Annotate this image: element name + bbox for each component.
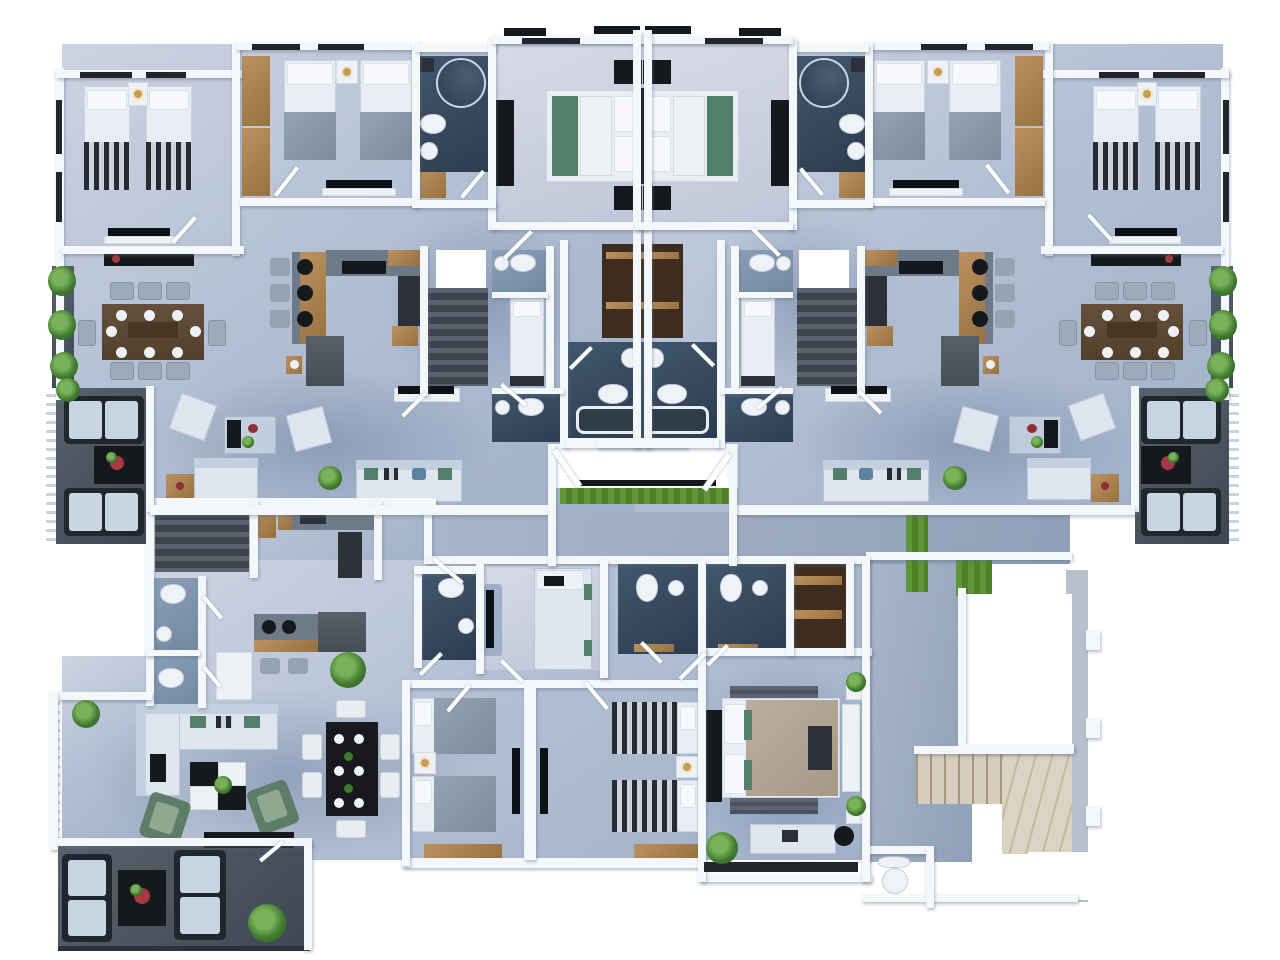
central-bath-toilet-right <box>657 384 687 404</box>
bath-p1-sink <box>668 580 684 596</box>
service-stairs-left <box>426 288 488 386</box>
master-b-bench <box>842 704 860 792</box>
balcony-outer-hatch-wall-right <box>1229 388 1239 544</box>
bath-p1-sill <box>634 644 674 652</box>
balcony-cushion-1b-right <box>1147 401 1180 439</box>
wall-maid-bath-bottom-right <box>737 292 793 298</box>
bbalcony-cushion-2b <box>180 897 220 934</box>
bath-l1-toilet <box>160 584 186 604</box>
bwall-closet-left <box>786 560 794 656</box>
bwall-corridor-south <box>428 556 870 564</box>
bchair-6 <box>336 820 366 838</box>
core-corridor <box>866 564 972 862</box>
bath-corner-shower-right <box>799 58 849 108</box>
kids-b-blanket-2 <box>612 780 678 832</box>
bliving-pillow-1 <box>190 716 206 728</box>
bedroom-a-blanket-1-left <box>84 142 130 190</box>
wall-maid-bath-bottom-left <box>492 292 548 298</box>
bath-linen-closet-left <box>416 172 446 198</box>
stairs-void-left <box>436 250 486 288</box>
window-a2-right <box>1099 72 1139 78</box>
window-b2-left <box>318 44 364 50</box>
kids-a-blanket-1 <box>434 698 496 754</box>
chair-head-1-right <box>1189 320 1207 346</box>
kids-a-lamp <box>419 757 431 769</box>
bplate-2 <box>354 734 364 744</box>
bbalcony-plant <box>248 904 286 942</box>
chair-4-right <box>1151 362 1175 380</box>
bedroom-b-wardrobe-2-left <box>242 128 270 196</box>
master-bed-runner-left <box>552 96 578 176</box>
planter-plant-2-left <box>48 310 76 340</box>
wall-central-bath-bottom-right <box>597 438 719 448</box>
planter-plant-3-left <box>50 352 78 380</box>
master-b-side-table <box>834 826 854 846</box>
family-tv <box>486 590 494 648</box>
cooktop-1-left <box>297 259 313 275</box>
bath-toilet-left <box>420 114 446 134</box>
kitchen-jar-right <box>986 360 995 369</box>
bedroom-b-wardrobe-2-right <box>1015 128 1043 196</box>
btable-green-2 <box>344 784 353 793</box>
bwall-balcony-right <box>304 842 312 950</box>
balcony-flower-leaves-right <box>1168 452 1179 463</box>
sofa-pillow-green-1-left <box>364 468 378 480</box>
floor-plan-canvas <box>0 0 1280 960</box>
roof-mark-1-left <box>504 28 546 36</box>
balcony-flower-leaves-left <box>106 452 117 463</box>
balcony-cushion-2a-right <box>1183 493 1216 531</box>
wall-central-mid-left <box>644 240 652 448</box>
wall-b-bath-right <box>865 42 873 206</box>
planter-plant-1-right <box>1209 266 1237 296</box>
plate-8-left <box>190 326 201 337</box>
kids-a-closet <box>424 844 502 858</box>
bedroom-b-blanket-1-right <box>949 112 1001 160</box>
plate-7-left <box>106 326 117 337</box>
bath-l1-sink <box>156 626 172 642</box>
bbalcony-cushion-1a <box>68 860 106 896</box>
sofa-pillow-stripe-right <box>887 468 901 480</box>
kitchen-range-right <box>899 261 943 274</box>
bedroom-a-lamp-right <box>1141 88 1153 100</box>
planter-plant-2-right <box>1209 310 1237 340</box>
balcony-cushion-2a-left <box>69 493 102 531</box>
bedroom-b-blanket-2-right <box>873 112 925 160</box>
master-tv-panel-left <box>496 100 514 186</box>
bottom-bath-p1-floor <box>618 564 698 654</box>
bedroom-a-blanket-2-left <box>146 142 192 190</box>
kitchen2-burner-2 <box>282 620 296 634</box>
window-a1-left <box>80 72 132 78</box>
bedroom-b-pillow-2-right <box>876 63 922 85</box>
wall-maid-right-right <box>731 246 739 394</box>
kids-b-pillow-1 <box>680 706 696 730</box>
bar-stool-2-right <box>995 284 1015 302</box>
central-bath-tub-right <box>645 406 709 434</box>
chair-4-left <box>110 362 134 380</box>
core-wall-top <box>866 552 1072 560</box>
planter-plant-4-left <box>56 378 80 402</box>
dining-runner-left <box>128 322 178 338</box>
guest-bath-sink-left <box>495 400 510 415</box>
family-remote <box>544 576 564 586</box>
maid-bath-sink-right <box>776 256 791 271</box>
bath-l2-toilet <box>158 668 184 688</box>
bath-r-sink <box>458 618 474 634</box>
master-b-throw <box>808 726 832 770</box>
chair-3-right <box>1095 282 1119 300</box>
wall-master-bottom-right <box>635 222 793 230</box>
grass-strip-right-1 <box>906 508 928 592</box>
bwall-kids-top <box>402 680 704 688</box>
maid-bath-toilet-right <box>749 254 775 272</box>
plate-5-right <box>1130 347 1141 358</box>
master-b-pillow-2 <box>724 754 746 794</box>
plate-8-right <box>1084 326 1095 337</box>
planter-plant-4-right <box>1205 378 1229 402</box>
laundry-shelves <box>155 508 249 572</box>
chair-head-2-right <box>1059 320 1077 346</box>
powder-wall-top <box>870 846 932 854</box>
bottom-core-wall <box>862 894 1078 902</box>
kids-a-blanket-2 <box>434 776 496 832</box>
coffee-table-frame-right <box>1044 420 1058 448</box>
master-b-plant-1 <box>846 672 866 692</box>
kitchen2-low-wood <box>254 640 318 652</box>
kitchen-cabinet-left <box>392 326 418 346</box>
bplate-4 <box>354 766 364 776</box>
kitchen2-stool-2 <box>288 658 308 674</box>
bedroom-a-tv-left <box>108 228 170 236</box>
stair-flight-marble <box>916 754 1002 804</box>
wall-lobby-side-right <box>729 444 737 566</box>
chair-1-right <box>1151 282 1175 300</box>
kitchen-island-left <box>306 336 344 386</box>
kids-b-pillow-2 <box>680 784 696 808</box>
kids-b-lamp <box>681 761 693 773</box>
bath-sink-right <box>847 142 865 160</box>
bwall-left-upper <box>146 498 154 706</box>
living-sofa-1-back-right <box>1027 458 1091 468</box>
bbalcony-cushion-2a <box>180 856 220 893</box>
family-pillow-1 <box>584 584 592 600</box>
pilaster-1 <box>1086 630 1100 650</box>
bchair-4 <box>380 772 400 798</box>
balcony-cushion-2b-right <box>1147 493 1180 531</box>
wall-top-bath-right <box>789 44 869 52</box>
kitchen2-appliance <box>338 532 362 578</box>
bwall-right <box>862 560 870 882</box>
window-b1-right <box>985 44 1033 50</box>
bwall-jut <box>58 692 152 700</box>
elevator-wall <box>958 588 966 752</box>
bar-stool-1-right <box>995 258 1015 276</box>
closet-rail-a <box>794 576 842 585</box>
bath-toilet-right <box>839 114 865 134</box>
bwall-kids-bottom <box>402 858 704 868</box>
bedroom-b-pillow-1-right <box>952 63 998 85</box>
bedroom-a-pillow-2-right <box>1096 90 1136 110</box>
window-left-1-right <box>1223 100 1229 154</box>
entry-step <box>578 480 716 486</box>
master-b-teal-2 <box>744 760 752 790</box>
bedroom-a-pillow-1-left <box>87 90 127 110</box>
bath-p2-toilet <box>720 574 742 602</box>
bottom-bath-p2-floor <box>704 564 786 654</box>
coffee-table-red-decor-right <box>1027 424 1037 433</box>
maid-bed-pillow-right <box>744 301 772 317</box>
bliving-pillow-2 <box>216 716 232 728</box>
bplate-6 <box>354 798 364 808</box>
bwall-closet-right <box>846 560 854 656</box>
bedroom-b-blanket-1-left <box>284 112 336 160</box>
elevator-void <box>964 594 1072 746</box>
central-bath-toilet-left <box>598 384 628 404</box>
maid-bed-foot-right <box>741 376 775 386</box>
wall-center-top-left <box>644 30 652 244</box>
kitchen-cabinet-right <box>867 326 893 346</box>
bedroom-b-lamp-left <box>341 66 353 78</box>
window-b2-right <box>921 44 967 50</box>
stairs-void-right <box>799 250 849 288</box>
central-bath-tub-left <box>576 406 640 434</box>
sofa-pillow-stripe-left <box>384 468 398 480</box>
bbalcony-edge <box>58 946 310 951</box>
kids-a-tv <box>512 748 520 814</box>
bwall-left-lower <box>50 692 58 850</box>
kids-b-tv <box>540 748 548 814</box>
btable-green-1 <box>344 752 353 761</box>
bwall-baths-mid <box>698 560 706 656</box>
lower-void <box>1028 852 1150 900</box>
wall-maid-right-left <box>546 246 554 394</box>
bwall-kids-a-left <box>402 680 410 866</box>
hall-plant <box>330 652 366 688</box>
chair-6-left <box>166 362 190 380</box>
bedroom-b-blanket-2-left <box>360 112 412 160</box>
master-b-plant-2 <box>846 796 866 816</box>
dining-runner-right <box>1107 322 1157 338</box>
wall-b-bottom-left <box>240 198 418 206</box>
bedroom-b-pillow-1-left <box>287 63 333 85</box>
bedroom-b-tv-left <box>326 180 392 188</box>
wall-a-bottom-left <box>62 246 244 254</box>
master-b-pillow-1 <box>724 704 746 744</box>
buffet-decor-left <box>112 255 120 263</box>
cooktop-2-right <box>972 285 988 301</box>
chair-2-left <box>138 282 162 300</box>
kitchen2-burner-1 <box>262 620 276 634</box>
chair-5-right <box>1123 362 1147 380</box>
wall-stairs-left-left <box>420 246 428 396</box>
stair-wall <box>914 746 1074 754</box>
bbalcony-flower-leaves <box>130 884 142 896</box>
master-bed-fold-left <box>580 96 612 176</box>
kids-b-blanket-1 <box>612 702 678 754</box>
wall-central-mid-right <box>633 240 641 448</box>
bplate-3 <box>334 766 344 776</box>
wall-unit-bottom-right <box>731 505 1135 515</box>
bplate-5 <box>334 798 344 808</box>
kitchen-jar-left <box>290 360 299 369</box>
bwall-kids-divider <box>524 688 536 860</box>
bwall-bath-r-left <box>414 568 422 668</box>
bchair-1 <box>302 734 322 760</box>
maid-bed-pillow-left <box>513 301 541 317</box>
window-b1-left <box>252 44 300 50</box>
kids-b-closet <box>634 844 702 858</box>
bedroom-b-lamp-right <box>932 66 944 78</box>
pilaster-3 <box>1086 806 1100 826</box>
powder-toilet-tank <box>878 856 910 868</box>
sofa-pillow-green-2-left <box>438 468 452 480</box>
window-master-left <box>522 38 580 44</box>
balcony-cushion-1a-left <box>69 401 102 439</box>
bath-p1-toilet <box>636 574 658 602</box>
wall-a-bottom-right <box>1041 246 1223 254</box>
plate-1-right <box>1158 310 1169 321</box>
chair-head-2-left <box>208 320 226 346</box>
bar-stool-1-left <box>270 258 290 276</box>
window-left-2-right <box>1223 172 1229 222</box>
wall-top-bath-left <box>416 44 496 52</box>
planter-plant-3-right <box>1207 352 1235 380</box>
bedroom-a-lamp-left <box>132 88 144 100</box>
maid-bed-foot-left <box>510 376 544 386</box>
shower-box <box>216 652 252 700</box>
coffee-table-plant-right <box>1031 436 1043 448</box>
bwall-family-right <box>600 560 608 678</box>
kitchen-appliance-right <box>865 276 887 326</box>
plate-4-left <box>116 347 127 358</box>
bedroom-b-pillow-2-left <box>363 63 409 85</box>
balcony-cushion-1a-right <box>1183 401 1216 439</box>
bliving-frame <box>150 754 166 782</box>
bath-corner-shower-left <box>436 58 486 108</box>
bedroom-b-tv-right <box>893 180 959 188</box>
wall-bath-bottom-left <box>412 200 496 208</box>
master-b-slippers <box>782 830 798 842</box>
buffet-decor-right <box>1165 255 1173 263</box>
powder-wall-side <box>926 846 934 908</box>
plate-6-left <box>172 347 183 358</box>
wall-living-balcony-left <box>146 386 154 512</box>
plate-2-right <box>1130 310 1141 321</box>
sofa-pillow-blue-left <box>412 468 426 480</box>
bedroom-a-tv-console-left <box>104 236 176 244</box>
bedroom-b-wardrobe-1-left <box>242 56 270 126</box>
sofa-side-plant-right <box>943 466 967 490</box>
master-bed-fold-right <box>673 96 705 176</box>
maid-bath-toilet-left <box>510 254 536 272</box>
master-tv-panel-right <box>771 100 789 186</box>
bedroom-b-tv-console-right <box>889 188 963 196</box>
bwall-family-left <box>476 564 484 674</box>
bliving-plant <box>72 700 100 728</box>
planter-plant-1-left <box>48 266 76 296</box>
plate-3-right <box>1102 310 1113 321</box>
bchair-5 <box>336 700 366 718</box>
stair-landing-marble <box>1002 754 1072 854</box>
bliving-pillow-3 <box>244 716 260 728</box>
master-b-teal-1 <box>744 710 752 740</box>
bedroom-a-pillow-1-right <box>1158 90 1198 110</box>
wall-central-left-right <box>717 240 725 448</box>
powder-toilet-bowl <box>882 868 908 894</box>
chair-5-left <box>138 362 162 380</box>
chair-1-left <box>110 282 134 300</box>
balcony-cushion-1b-left <box>105 401 138 439</box>
cooktop-2-left <box>297 285 313 301</box>
bedroom-a-blanket-1-right <box>1155 142 1201 190</box>
wall-central-left-left <box>560 240 568 448</box>
living-sofa-1-back-left <box>194 458 258 468</box>
plate-3-left <box>172 310 183 321</box>
bchair-2 <box>302 772 322 798</box>
bliving-coffee-plant <box>214 776 232 794</box>
plate-6-right <box>1102 347 1113 358</box>
bar-stool-3-right <box>995 310 1015 328</box>
wall-stairs-left-right <box>857 246 865 396</box>
wall-b-bath-left <box>412 42 420 206</box>
bwall-balcony <box>58 838 312 846</box>
bbalcony-cushion-1b <box>68 900 106 936</box>
chair-3-left <box>166 282 190 300</box>
plate-4-right <box>1158 347 1169 358</box>
chair-2-right <box>1123 282 1147 300</box>
window-master-right <box>705 38 763 44</box>
bwall-master-bottom <box>700 874 872 882</box>
balcony-outer-hatch-wall-left <box>46 388 56 544</box>
window-left-2-left <box>56 172 62 222</box>
master-bed-runner-right <box>707 96 733 176</box>
balcony-cushion-2b-left <box>105 493 138 531</box>
kids-a-pillow-1 <box>414 702 432 726</box>
wall-a-b-right <box>1045 42 1053 256</box>
wall-bath-bottom-right <box>789 200 873 208</box>
sofa-side-plant-left <box>318 466 342 490</box>
coffee-table-frame-left <box>227 420 241 448</box>
wall-lobby-side-left <box>548 444 556 566</box>
kitchen-range-left <box>342 261 386 274</box>
pilaster-2 <box>1086 718 1100 738</box>
wall-unit-bottom-left <box>150 505 554 515</box>
bliving-sofa-back <box>136 704 278 714</box>
chair-head-1-left <box>78 320 96 346</box>
plate-1-left <box>116 310 127 321</box>
bedroom-a-tv-right <box>1115 228 1177 236</box>
plate-2-left <box>144 310 155 321</box>
master-b-headboard <box>704 710 722 802</box>
bliving-coffee-3 <box>190 786 218 810</box>
kitchen-appliance-left <box>398 276 420 326</box>
coffee-table-red-decor-left <box>248 424 258 433</box>
bliving-coffee-vase <box>232 790 242 804</box>
coffee-table-plant-left <box>242 436 254 448</box>
living-cabinet-decor-right <box>1101 482 1109 490</box>
bwall-bath-divider <box>146 650 200 656</box>
bedroom-a-tv-console-right <box>1109 236 1181 244</box>
bedroom-a-blanket-2-right <box>1093 142 1139 190</box>
wall-master-bottom-left <box>492 222 650 230</box>
window-left-1-left <box>56 100 62 154</box>
entry-grass-strip <box>560 488 734 504</box>
bath-p2-sink <box>752 580 768 596</box>
roof-mark-1-right <box>739 28 781 36</box>
kitchen-counter-wood-left <box>388 250 420 266</box>
kitchen-counter-wood-right <box>865 250 897 266</box>
